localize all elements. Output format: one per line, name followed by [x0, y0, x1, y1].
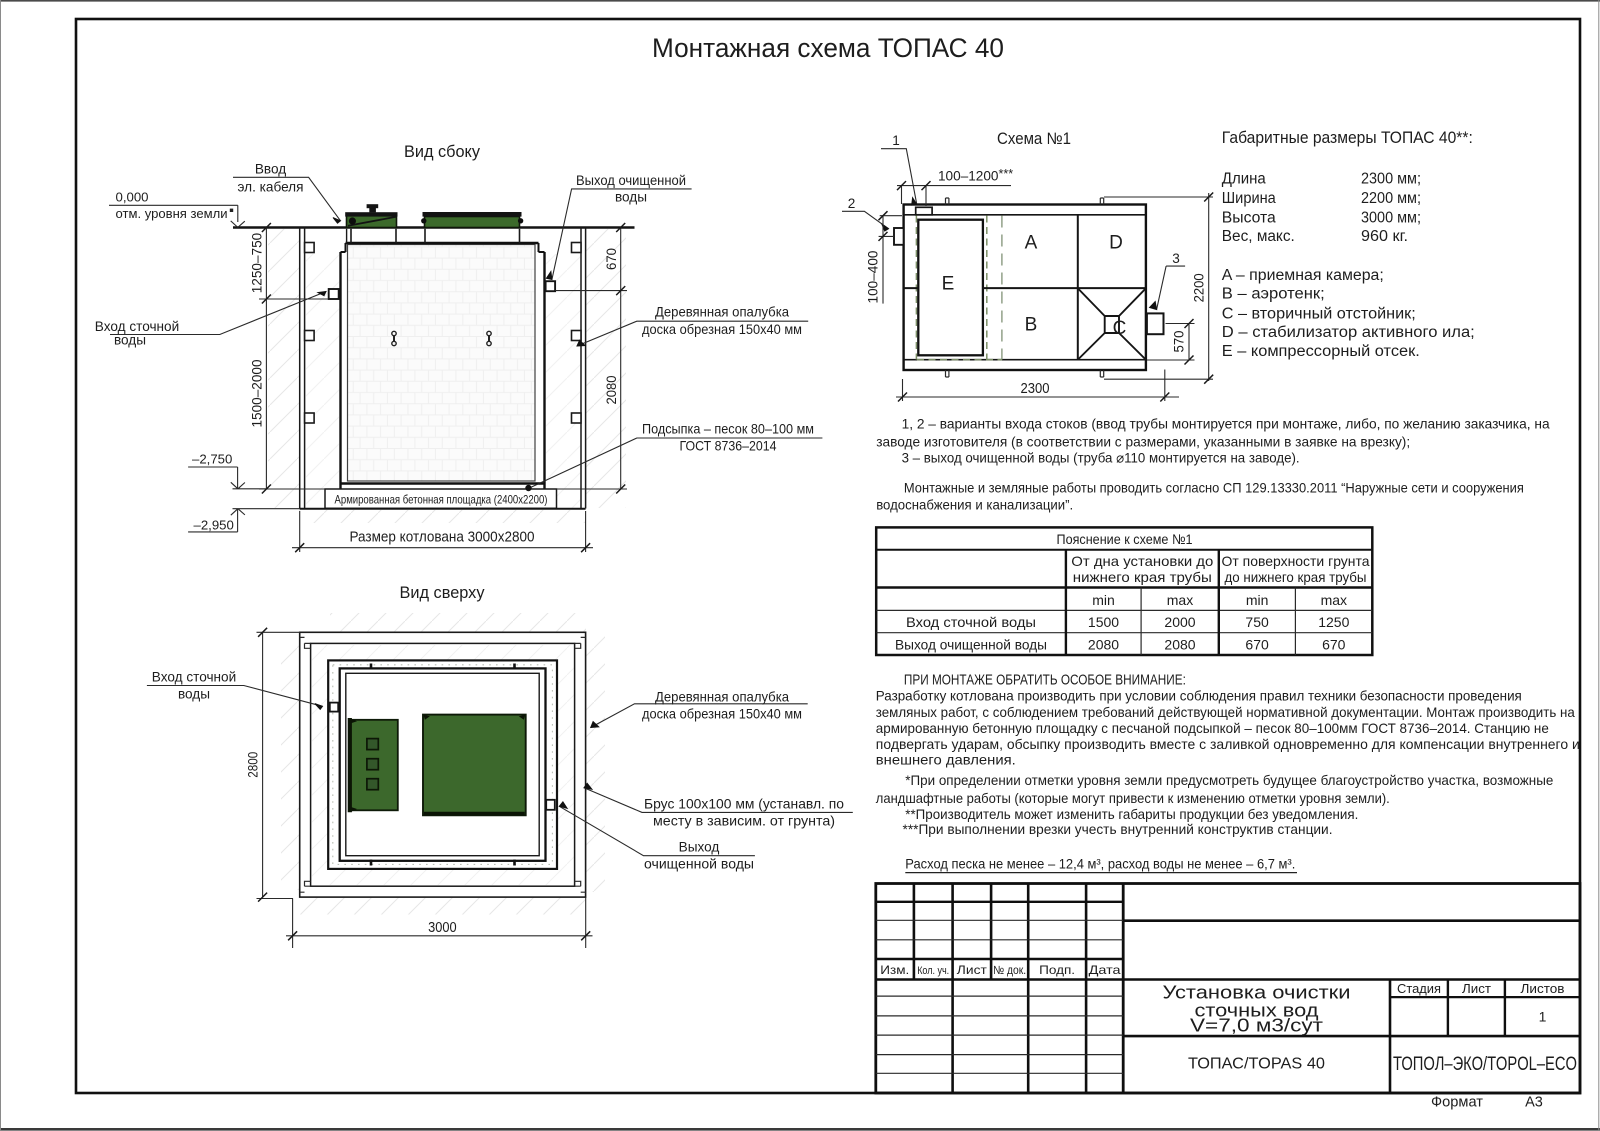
- svg-text:670: 670: [1322, 636, 1346, 652]
- svg-text:*При определении отметки уровн: *При определении отметки уровня земли пр…: [905, 772, 1553, 788]
- svg-text:670: 670: [604, 248, 619, 270]
- svg-text:B – аэротенк;: B – аэротенк;: [1222, 286, 1325, 303]
- svg-text:1500–2000: 1500–2000: [250, 359, 265, 427]
- svg-text:D: D: [1109, 233, 1123, 254]
- svg-text:3: 3: [1172, 251, 1180, 266]
- svg-text:отм. уровня земли: отм. уровня земли: [116, 206, 228, 221]
- svg-text:подвергать ударам, обсыпку про: подвергать ударам, обсыпку производить в…: [876, 736, 1580, 752]
- svg-text:нижнего края трубы: нижнего края трубы: [1073, 569, 1212, 585]
- svg-text:Вес, макс.: Вес, макс.: [1222, 228, 1295, 245]
- svg-text:***При выполнении врезки учест: ***При выполнении врезки учесть внутренн…: [903, 821, 1333, 837]
- svg-text:Размер котлована 3000х2800: Размер котлована 3000х2800: [350, 529, 535, 546]
- svg-text:Ввод: Ввод: [255, 162, 286, 177]
- svg-text:1: 1: [892, 133, 900, 148]
- svg-text:ТОПАС/TOPAS 40: ТОПАС/TOPAS 40: [1188, 1056, 1325, 1073]
- svg-text:3 – выход очищенной воды (труб: 3 – выход очищенной воды (труба ⌀110 мон…: [902, 449, 1300, 465]
- svg-text:ГОСТ 8736–2014: ГОСТ 8736–2014: [680, 439, 777, 454]
- svg-text:Брус 100х100 мм (устанавл. по: Брус 100х100 мм (устанавл. по: [644, 797, 844, 812]
- svg-text:Ширина: Ширина: [1222, 190, 1276, 207]
- svg-text:Монтажная схема ТОПАС 40: Монтажная схема ТОПАС 40: [652, 33, 1004, 63]
- svg-text:доска обрезная 150х40 мм: доска обрезная 150х40 мм: [642, 707, 802, 722]
- svg-text:Схема №1: Схема №1: [997, 130, 1071, 148]
- svg-text:B: B: [1025, 315, 1038, 336]
- svg-text:3000: 3000: [428, 920, 457, 936]
- svg-text:Высота: Высота: [1222, 210, 1276, 227]
- svg-text:От поверхности грунта: От поверхности грунта: [1222, 553, 1370, 569]
- svg-text:ТОПОЛ–ЭКО/TOPOL–ECO: ТОПОЛ–ЭКО/TOPOL–ECO: [1393, 1053, 1577, 1075]
- svg-text:2080: 2080: [1088, 636, 1119, 652]
- svg-text:V=7,0 м3/сут: V=7,0 м3/сут: [1190, 1016, 1323, 1036]
- svg-text:Пояснение к схеме №1: Пояснение к схеме №1: [1057, 531, 1193, 547]
- svg-text:Монтажные и земляные работы пр: Монтажные и земляные работы проводить со…: [904, 480, 1524, 496]
- svg-text:570: 570: [1172, 330, 1187, 352]
- svg-text:Дата: Дата: [1089, 963, 1122, 977]
- svg-text:Деревянная опалубка: Деревянная опалубка: [655, 690, 789, 705]
- svg-text:D – стабилизатор активного ила: D – стабилизатор активного ила;: [1222, 324, 1475, 341]
- svg-text:Подсыпка – песок 80–100 мм: Подсыпка – песок 80–100 мм: [642, 422, 814, 437]
- svg-text:Армированная бетонная площадка: Армированная бетонная площадка (2400х220…: [335, 494, 548, 507]
- svg-text:2200 мм;: 2200 мм;: [1361, 190, 1421, 207]
- svg-text:2: 2: [848, 196, 856, 211]
- svg-text:армированную бетонную площадку: армированную бетонную площадку с песчано…: [876, 720, 1549, 736]
- svg-text:эл. кабеля: эл. кабеля: [238, 180, 304, 195]
- svg-text:2300 мм;: 2300 мм;: [1361, 170, 1421, 187]
- svg-text:2080: 2080: [604, 375, 619, 404]
- svg-text:Стадия: Стадия: [1397, 982, 1441, 996]
- svg-text:E: E: [942, 274, 955, 295]
- svg-text:C: C: [1113, 318, 1127, 339]
- svg-text:ландшафтные работы (которые мо: ландшафтные работы (которые могут привес…: [876, 790, 1390, 806]
- svg-text:водоснабжения и канализации”.: водоснабжения и канализации”.: [876, 497, 1073, 513]
- svg-text:воды: воды: [178, 687, 210, 702]
- svg-text:C – вторичный отстойник;: C – вторичный отстойник;: [1222, 305, 1416, 322]
- svg-text:Вид сбоку: Вид сбоку: [404, 143, 481, 161]
- svg-text:ПРИ МОНТАЖЕ ОБРАТИТЬ ОСОБОЕ ВН: ПРИ МОНТАЖЕ ОБРАТИТЬ ОСОБОЕ ВНИМАНИЕ:: [904, 673, 1186, 689]
- svg-text:Габаритные размеры ТОПАС 40**:: Габаритные размеры ТОПАС 40**:: [1222, 129, 1473, 147]
- svg-text:Формат: Формат: [1431, 1095, 1483, 1111]
- svg-text:max: max: [1167, 592, 1193, 608]
- svg-text:заводе изготовителя (в соответ: заводе изготовителя (в соответствии с ра…: [876, 433, 1410, 449]
- svg-text:месту в зависим. от грунта): месту в зависим. от грунта): [653, 814, 835, 829]
- svg-text:750: 750: [1245, 614, 1269, 630]
- svg-text:1, 2 – варианты входа стоков: 1, 2 – варианты входа стоков (ввод трубы…: [902, 416, 1550, 432]
- svg-text:земляных работ, с соблюдением: земляных работ, с соблюдением требований…: [876, 704, 1575, 720]
- svg-text:Выход очищенной: Выход очищенной: [576, 173, 686, 188]
- svg-text:100–400: 100–400: [866, 250, 881, 303]
- svg-text:A: A: [1025, 233, 1038, 254]
- svg-text:2080: 2080: [1164, 636, 1195, 652]
- svg-text:Лист: Лист: [957, 963, 988, 977]
- svg-text:2800: 2800: [246, 751, 261, 777]
- svg-text:1: 1: [1539, 1009, 1547, 1025]
- svg-text:1250–750: 1250–750: [250, 232, 265, 293]
- svg-text:min: min: [1246, 592, 1269, 608]
- svg-text:Подп.: Подп.: [1039, 963, 1075, 977]
- svg-text:2300: 2300: [1021, 381, 1050, 397]
- svg-text:воды: воды: [615, 190, 647, 205]
- svg-text:№ док.: № док.: [993, 963, 1026, 977]
- svg-text:–2,750: –2,750: [192, 452, 232, 467]
- svg-text:max: max: [1321, 592, 1347, 608]
- svg-text:**Производитель может изменить: **Производитель может изменить габариты …: [905, 806, 1358, 822]
- svg-text:доска обрезная 150х40 мм: доска обрезная 150х40 мм: [642, 322, 802, 337]
- svg-text:Длина: Длина: [1222, 170, 1266, 187]
- svg-text:А3: А3: [1525, 1095, 1543, 1111]
- svg-text:A – приемная камера;: A – приемная камера;: [1222, 267, 1384, 284]
- svg-text:2000: 2000: [1164, 614, 1195, 630]
- svg-text:внешнего давления.: внешнего давления.: [876, 751, 1016, 767]
- svg-text:Кол. уч.: Кол. уч.: [917, 965, 949, 977]
- svg-text:3000 мм;: 3000 мм;: [1361, 210, 1421, 227]
- svg-text:очищенной воды: очищенной воды: [644, 857, 754, 872]
- svg-text:Листов: Листов: [1521, 982, 1565, 996]
- svg-text:Лист: Лист: [1462, 982, 1491, 996]
- svg-text:min: min: [1092, 592, 1115, 608]
- svg-text:Вид сверху: Вид сверху: [400, 584, 486, 602]
- svg-text:670: 670: [1245, 636, 1269, 652]
- svg-text:Установка очистки: Установка очистки: [1163, 983, 1351, 1003]
- svg-text:до нижнего края трубы: до нижнего края трубы: [1225, 569, 1367, 585]
- svg-text:1250: 1250: [1318, 614, 1349, 630]
- svg-text:Выход очищенной воды: Выход очищенной воды: [895, 636, 1047, 652]
- svg-text:E – компрессорный отсек.: E – компрессорный отсек.: [1222, 343, 1420, 360]
- svg-text:Вход сточной: Вход сточной: [152, 670, 236, 685]
- svg-text:2200: 2200: [1192, 273, 1207, 302]
- svg-text:Вход сточной воды: Вход сточной воды: [906, 614, 1036, 630]
- svg-text:Расход песка не менее – 12,4 м: Расход песка не менее – 12,4 м³, расход …: [905, 855, 1295, 871]
- svg-text:Выход: Выход: [679, 840, 720, 855]
- svg-text:1500: 1500: [1088, 614, 1119, 630]
- svg-text:От дна установки до: От дна установки до: [1071, 553, 1213, 569]
- svg-text:0,000: 0,000: [116, 190, 149, 205]
- svg-text:Деревянная опалубка: Деревянная опалубка: [655, 305, 789, 320]
- svg-text:Разработку котлована производи: Разработку котлована производить при усл…: [876, 688, 1522, 704]
- svg-text:Изм.: Изм.: [880, 963, 909, 977]
- svg-text:–2,950: –2,950: [194, 518, 234, 533]
- svg-text:960 кг.: 960 кг.: [1361, 228, 1408, 245]
